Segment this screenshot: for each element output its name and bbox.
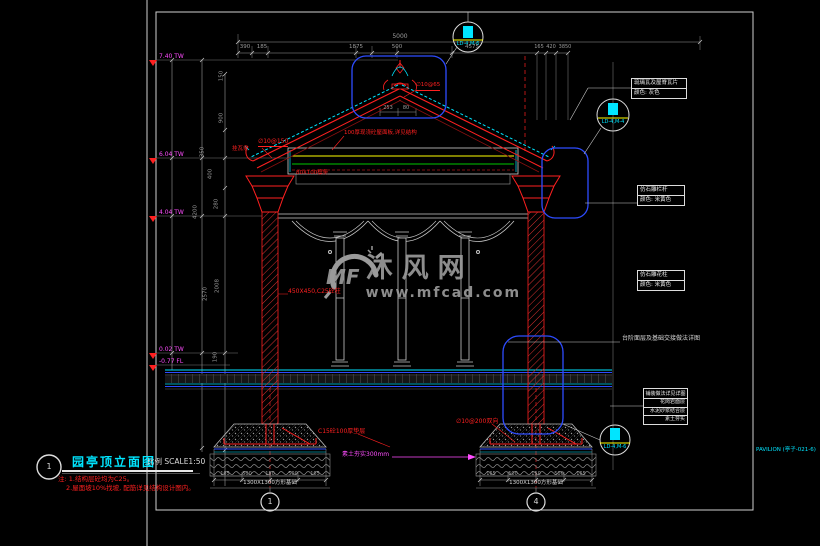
dim: 4200 [193,205,199,219]
railing-label-box: 仿石雕栏杆 颜色: 米黄色 [637,185,685,206]
footing-total-dim-right: 1300X1300方形基础 [509,481,563,487]
dim: 165 [486,472,496,477]
dim-total-width: 5000 [392,34,407,40]
dim: 390 [240,45,251,51]
dim: 350 [200,147,206,158]
watermark-url: www.mfcad.com [366,285,522,301]
dim: 165 [310,472,320,477]
dim: 2570 [203,287,209,301]
elevation-marker: -0.77 FL [159,359,183,365]
column-label-box: 仿石雕花柱 颜色: 米黄色 [637,270,685,291]
column-line1: 仿石雕花柱 [638,271,684,281]
watermark: MF 沐风网 www.mfcad.com [326,246,521,301]
cad-sheet: 1 园亭顶立面图 比例 SCALE1:50 注: 1.结构层砼均为C25。 2.… [0,0,820,546]
watermark-name: 沐风网 [366,246,522,285]
paving-table: 铺装做法详见详图 花岗岩面层 水泥砂浆结合层 素土夯实 [643,388,688,425]
architrave-beam [288,148,518,184]
dim: 165 [534,45,544,50]
roof-tile-label-box: 琉璃瓦及屋脊瓦片 颜色: 灰色 [631,78,687,99]
roof-rebar-note: ∅10@150 [258,139,288,147]
railing-line1: 仿石雕栏杆 [638,186,684,196]
purlin-note: 80X100檩条 [296,171,328,177]
paving-table-header: 铺装做法详见详图 [643,388,688,399]
railing-line2: 颜色: 米黄色 [638,196,684,205]
dim: 500 [508,472,518,477]
dim: 500 [392,45,403,51]
scale-label: 比例 SCALE1:50 [147,458,205,466]
dim: 3850 [559,45,572,50]
roof [245,83,555,172]
dim: 400 [208,169,214,180]
page-title: 园亭顶立面图 [72,456,156,468]
grid-bubble-1: 1 [267,498,272,506]
tile-batten-note: 挂瓦条 [232,147,249,153]
dim: 420 [546,45,556,50]
subgrade-note: 素土夯实300mm [342,452,389,458]
title-bubble-number: 1 [46,463,51,471]
dim: 150 [531,472,541,477]
elevation-marker: 6.04 TW [159,152,184,158]
watermark-logo: MF [326,265,360,289]
dim: 150 [265,472,275,477]
callout-bottom-right-label: LD-4,M-6 [604,445,627,450]
dim: 1875 [349,45,363,51]
roof-tile-line1: 琉璃瓦及屋脊瓦片 [632,79,686,89]
cushion-note: C15砼100厚垫层 [318,429,365,435]
dim: 165 [220,472,230,477]
elevation-marker: 0.02 TW [159,347,184,353]
dim: 500 [554,472,564,477]
dim: 4575 [465,45,479,51]
column-spec-note: 450X450,C25砼柱 [288,289,341,295]
callout-right-label: LD-4,M-4 [602,120,625,125]
dim: 253 [383,106,393,111]
roof-tile-line2: 颜色: 灰色 [632,89,686,98]
note-line-1: 注: 1.结构层砼均为C25。 [58,476,133,483]
roof-slab-note: 100厚现浇砼屋面板,详见结构 [344,131,417,137]
watermark-text: 沐风网 www.mfcad.com [366,246,522,301]
dim: 150 [219,71,225,82]
dim: 500 [288,472,298,477]
paving-row: 素土夯实 [643,416,688,425]
subgrade-leader [392,454,476,460]
base-note: 台阶面层及基础交接做法详图 [622,336,700,342]
dim: 500 [242,472,252,477]
paving-row: 水泥砂浆结合层 [643,408,688,417]
column-line2: 颜色: 米黄色 [638,281,684,290]
ground-band [165,370,612,389]
dim: 185 [257,45,268,51]
note-line-2: 2.屋面坡10%找坡, 配筋详见结构设计图内。 [66,485,195,492]
dim: 190 [213,352,219,363]
sheet-reference: PAVILION (亭子-021-6) [756,448,816,454]
footing-rebar-note: ∅10@200双向 [456,419,498,425]
grid-bubble-4: 4 [533,498,538,506]
roof-finial [384,60,417,90]
dim: 165 [576,472,586,477]
elevation-marker: 7.40 TW [159,54,184,60]
column-capitals [246,176,560,212]
dim: 2008 [215,279,221,293]
paving-row: 花岗岩面层 [643,399,688,408]
elevation-marker: 4.04 TW [159,210,184,216]
footing-total-dim-left: 1300X1300方形基础 [243,481,297,487]
ridge-rebar-note: ∅10@65 [416,83,440,91]
dim: 80 [403,106,409,111]
dim: 280 [214,199,220,210]
dim: 900 [219,113,225,124]
